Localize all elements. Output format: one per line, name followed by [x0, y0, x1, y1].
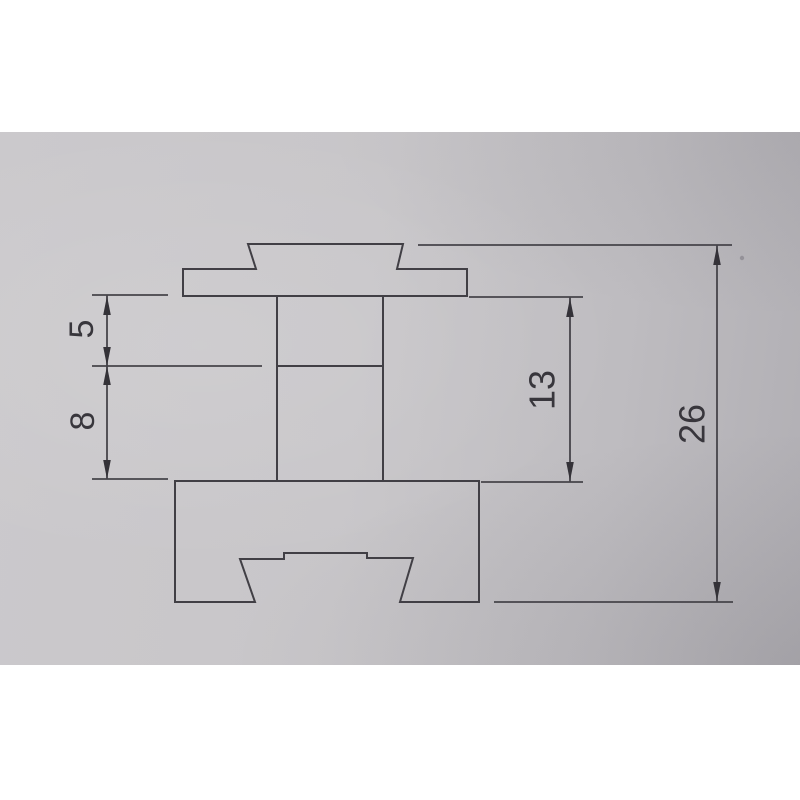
dim-label-13: 13 — [522, 370, 563, 410]
bottom-block-profile — [175, 481, 479, 602]
arrowhead-up — [713, 246, 721, 265]
dimension-26: 26 — [418, 245, 733, 602]
page: 5 8 13 26 — [0, 0, 800, 800]
arrowhead-down — [713, 582, 721, 601]
dimension-5-8: 5 8 — [63, 295, 262, 479]
arrowhead-down — [103, 460, 111, 479]
arrowhead-down — [566, 462, 574, 481]
arrowhead-down — [103, 347, 111, 366]
dim-label-8: 8 — [64, 412, 102, 431]
arrowhead-up — [566, 298, 574, 317]
photo-dust-speck — [740, 256, 744, 260]
dim-label-26: 26 — [672, 404, 713, 444]
technical-drawing: 5 8 13 26 — [0, 0, 800, 800]
profile-outlines — [175, 244, 479, 602]
arrowhead-up — [103, 296, 111, 315]
dimension-13: 13 — [469, 297, 583, 482]
top-cap-profile — [183, 244, 467, 296]
dim-label-5: 5 — [63, 320, 101, 339]
arrowhead-up — [103, 366, 111, 385]
